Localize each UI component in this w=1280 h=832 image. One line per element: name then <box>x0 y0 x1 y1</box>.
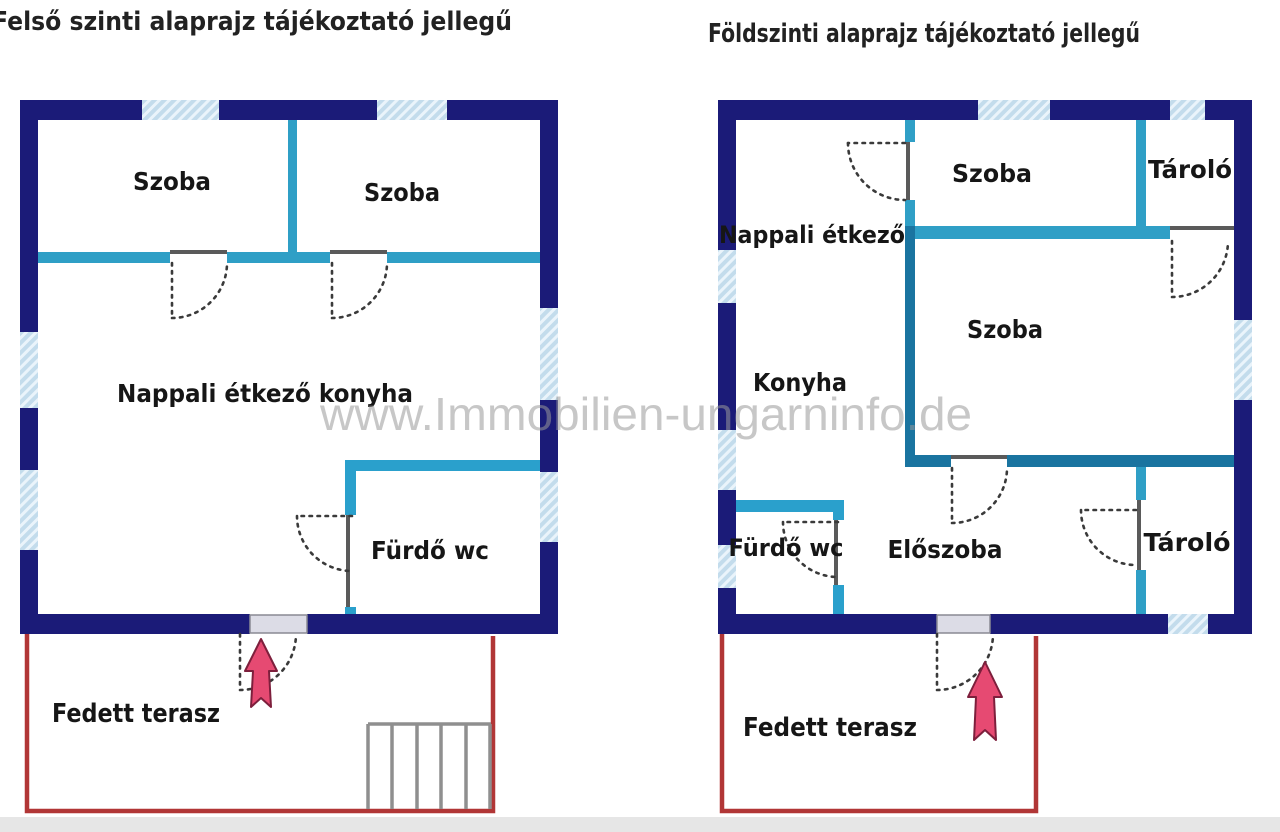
partition-wall <box>345 471 356 515</box>
window <box>1168 614 1208 634</box>
door-arc <box>952 468 1007 523</box>
partition-wall <box>345 460 540 471</box>
door-jamb <box>346 515 350 607</box>
wall-segment <box>20 120 38 332</box>
room-label-szoba: Szoba <box>967 315 1043 344</box>
partition-wall <box>38 252 540 263</box>
door-arc <box>1081 510 1136 565</box>
door-jamb <box>906 142 910 200</box>
wall-segment <box>1234 120 1252 320</box>
wall-segment <box>20 408 38 470</box>
wall-segment <box>540 120 558 308</box>
room-label-furdo: Fürdő wc <box>729 534 844 562</box>
wall-segment <box>718 614 937 634</box>
partition-wall <box>1136 120 1146 226</box>
partition-wall <box>345 607 356 614</box>
window <box>20 332 38 408</box>
wall-segment <box>718 588 736 614</box>
partition-wall <box>1136 570 1146 614</box>
door-arc <box>172 263 227 318</box>
room-label-tarolo-top: Tároló <box>1148 155 1232 184</box>
wall-segment <box>447 100 558 120</box>
window <box>20 470 38 550</box>
door-jamb <box>1137 500 1141 570</box>
window <box>1234 320 1252 400</box>
window <box>718 250 736 303</box>
door-lintel <box>330 250 387 254</box>
image-bottom-margin <box>0 817 1280 832</box>
room-label-nappali: Nappali étkező <box>719 221 905 249</box>
partition-wall <box>288 120 297 252</box>
entrance-door <box>937 615 990 633</box>
partition-wall <box>736 500 844 512</box>
partition-wall <box>833 512 844 520</box>
entrance-door <box>250 615 307 633</box>
wall-segment <box>219 100 377 120</box>
ground-floor-title: Földszinti alaprajz tájékoztató jellegű <box>708 19 1140 49</box>
window <box>978 100 1050 120</box>
floor-plans-svg: Felső szinti alaprajz tájékoztató jelleg… <box>0 0 1280 832</box>
partition-wall <box>905 120 915 142</box>
room-label-szoba-top: Szoba <box>952 159 1032 188</box>
wall-segment <box>990 614 1168 634</box>
wall-segment <box>1208 614 1252 634</box>
wall-segment <box>1050 100 1170 120</box>
room-label-tarolo-bottom: Tároló <box>1144 528 1231 557</box>
partition-wall <box>833 585 844 614</box>
upper-floor-title: Felső szinti alaprajz tájékoztató jelleg… <box>0 7 512 37</box>
door-arc <box>848 143 905 200</box>
wall-segment <box>307 614 558 634</box>
door-lintel <box>1170 226 1234 230</box>
room-label-szoba-2: Szoba <box>364 178 440 207</box>
window <box>540 308 558 400</box>
floor-plan-image: Felső szinti alaprajz tájékoztató jelleg… <box>0 0 1280 832</box>
door-lintel <box>951 455 1007 459</box>
wall-segment <box>1234 400 1252 634</box>
door-arc <box>1172 241 1228 297</box>
wall-segment <box>1205 100 1252 120</box>
door-arc <box>332 263 387 318</box>
wall-segment <box>20 100 142 120</box>
door-arc <box>297 516 352 571</box>
window <box>540 472 558 542</box>
room-label-furdo: Fürdő wc <box>371 536 489 565</box>
room-label-eloszoba: Előszoba <box>888 535 1003 564</box>
room-label-terasz: Fedett terasz <box>52 699 220 729</box>
partition-wall <box>905 200 915 226</box>
room-label-terasz: Fedett terasz <box>743 713 917 743</box>
wall-segment <box>20 614 250 634</box>
entrance-arrow-icon <box>968 662 1002 740</box>
entrance-arrow-icon <box>245 639 277 707</box>
floor-plan-upper: Szoba Szoba Nappali étkező konyha Fürdő … <box>20 100 558 811</box>
window <box>142 100 219 120</box>
floor-plan-ground: Nappali étkező Szoba Tároló Szoba Konyha… <box>718 100 1252 811</box>
room-label-szoba-1: Szoba <box>133 167 211 196</box>
wall-segment <box>718 100 978 120</box>
partition-wall <box>1136 467 1146 500</box>
window <box>1170 100 1205 120</box>
door-lintel <box>170 250 227 254</box>
watermark-text: www.Immobilien-ungarninfo.de <box>319 388 972 440</box>
window <box>377 100 447 120</box>
